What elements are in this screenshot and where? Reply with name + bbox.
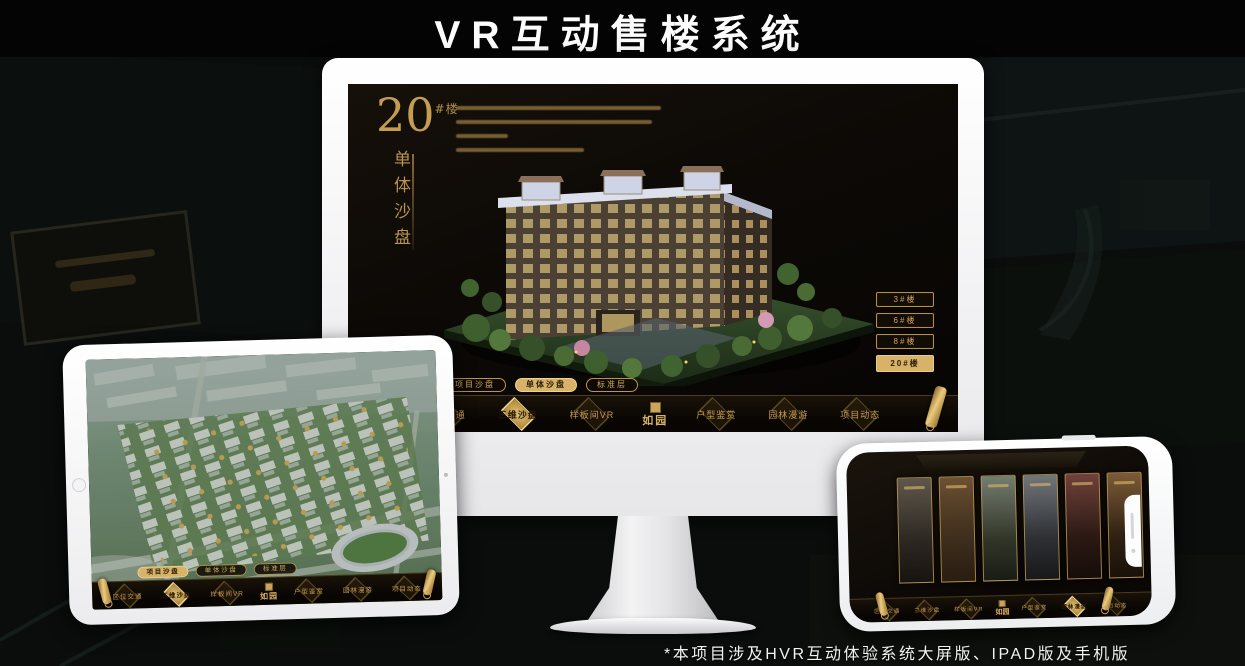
nav-item-garden-tour[interactable]: 园林漫游 xyxy=(764,405,812,424)
nav-item-unit-types[interactable]: 户型鉴赏 xyxy=(1019,600,1049,613)
panel-title-vertical: 单体沙盘 xyxy=(388,150,413,254)
block-heading: 20#楼 xyxy=(376,92,459,138)
intro-paragraph-placeholder xyxy=(456,106,661,162)
seal-icon xyxy=(650,402,661,413)
nav-item-project-news[interactable]: 项目动态 xyxy=(836,405,884,424)
phone-screen: 区位交通 三维沙盘 样板间VR 如园 户型鉴赏 园林漫游 项目动态 xyxy=(846,446,1152,623)
poster-canvas: VR互动售楼系统 xyxy=(0,0,1245,666)
floor-button-3[interactable]: 3#楼 xyxy=(876,292,934,307)
building-suffix: #楼 xyxy=(435,102,459,116)
tablet-screen: 项目沙盘 单体沙盘 标准层 区位交通 三维沙盘 样板间VR 如园 户型鉴赏 园林… xyxy=(86,350,443,610)
floor-button-6[interactable]: 6#楼 xyxy=(876,313,934,328)
vertical-rule xyxy=(412,154,414,250)
brand-logo-text: 如园 xyxy=(642,415,668,426)
seal-icon xyxy=(265,583,273,591)
building-number: 20 xyxy=(376,88,435,142)
footnote-text: *本项目涉及HVR互动体验系统大屏版、IPAD版及手机版 xyxy=(664,640,1130,664)
floor-button-8[interactable]: 8#楼 xyxy=(876,334,934,349)
speaker-slot-icon xyxy=(1131,513,1135,539)
scene-panel-strip xyxy=(897,472,1145,584)
phone-notch xyxy=(1124,495,1142,567)
scene-panel[interactable] xyxy=(1023,474,1061,581)
monitor-stand-base xyxy=(550,618,756,634)
tab-project-sandbox[interactable]: 项目沙盘 xyxy=(137,566,188,579)
nav-item-3d-sandbox[interactable]: 三维沙盘 xyxy=(494,405,542,424)
phone-side-button xyxy=(1062,435,1096,441)
tablet-device: 项目沙盘 单体沙盘 标准层 区位交通 三维沙盘 样板间VR 如园 户型鉴赏 园林… xyxy=(62,335,460,626)
tab-standard-floor[interactable]: 标准层 xyxy=(254,563,297,576)
scene-panel[interactable] xyxy=(897,477,935,584)
nav-item-garden-tour[interactable]: 园林漫游 xyxy=(340,581,376,596)
monitor-stand-neck xyxy=(580,516,726,632)
scene-panel[interactable] xyxy=(1065,473,1103,580)
nav-item-unit-types[interactable]: 户型鉴赏 xyxy=(291,583,327,598)
nav-item-showroom-vr[interactable]: 样板间VR xyxy=(566,405,619,424)
nav-item-3d-sandbox[interactable]: 三维沙盘 xyxy=(912,603,942,616)
nav-item-location[interactable]: 区位交通 xyxy=(109,588,145,603)
nav-item-project-news[interactable]: 项目动态 xyxy=(389,580,425,595)
tab-single-sandbox[interactable]: 单体沙盘 xyxy=(515,378,577,392)
nav-item-unit-types[interactable]: 户型鉴赏 xyxy=(692,405,740,424)
nav-item-showroom-vr[interactable]: 样板间VR xyxy=(952,602,985,615)
floor-selector: 3#楼 6#楼 8#楼 20#楼 xyxy=(876,292,934,378)
phone-device: 区位交通 三维沙盘 样板间VR 如园 户型鉴赏 园林漫游 项目动态 xyxy=(836,436,1176,632)
page-title: VR互动售楼系统 xyxy=(0,4,1245,60)
nav-item-showroom-vr[interactable]: 样板间VR xyxy=(207,585,247,600)
brand-logo: 如园 xyxy=(642,402,668,426)
scene-panel[interactable] xyxy=(939,476,977,583)
brand-logo-text: 如园 xyxy=(260,592,278,600)
monitor-sub-tabs: 项目沙盘 单体沙盘 标准层 xyxy=(444,378,638,392)
scene-panel[interactable] xyxy=(981,475,1019,582)
camera-dot-icon xyxy=(1131,549,1135,553)
building-render xyxy=(436,142,882,386)
tab-single-sandbox[interactable]: 单体沙盘 xyxy=(196,564,247,577)
brand-logo: 如园 xyxy=(995,600,1009,615)
gate-roof-render xyxy=(916,451,1086,471)
floor-button-20[interactable]: 20#楼 xyxy=(876,355,934,372)
brand-logo: 如园 xyxy=(260,583,278,600)
tab-standard-floor[interactable]: 标准层 xyxy=(586,378,638,392)
nav-item-garden-tour[interactable]: 园林漫游 xyxy=(1059,599,1089,612)
nav-item-3d-sandbox[interactable]: 三维沙盘 xyxy=(158,586,194,601)
brand-logo-text: 如园 xyxy=(995,608,1009,615)
